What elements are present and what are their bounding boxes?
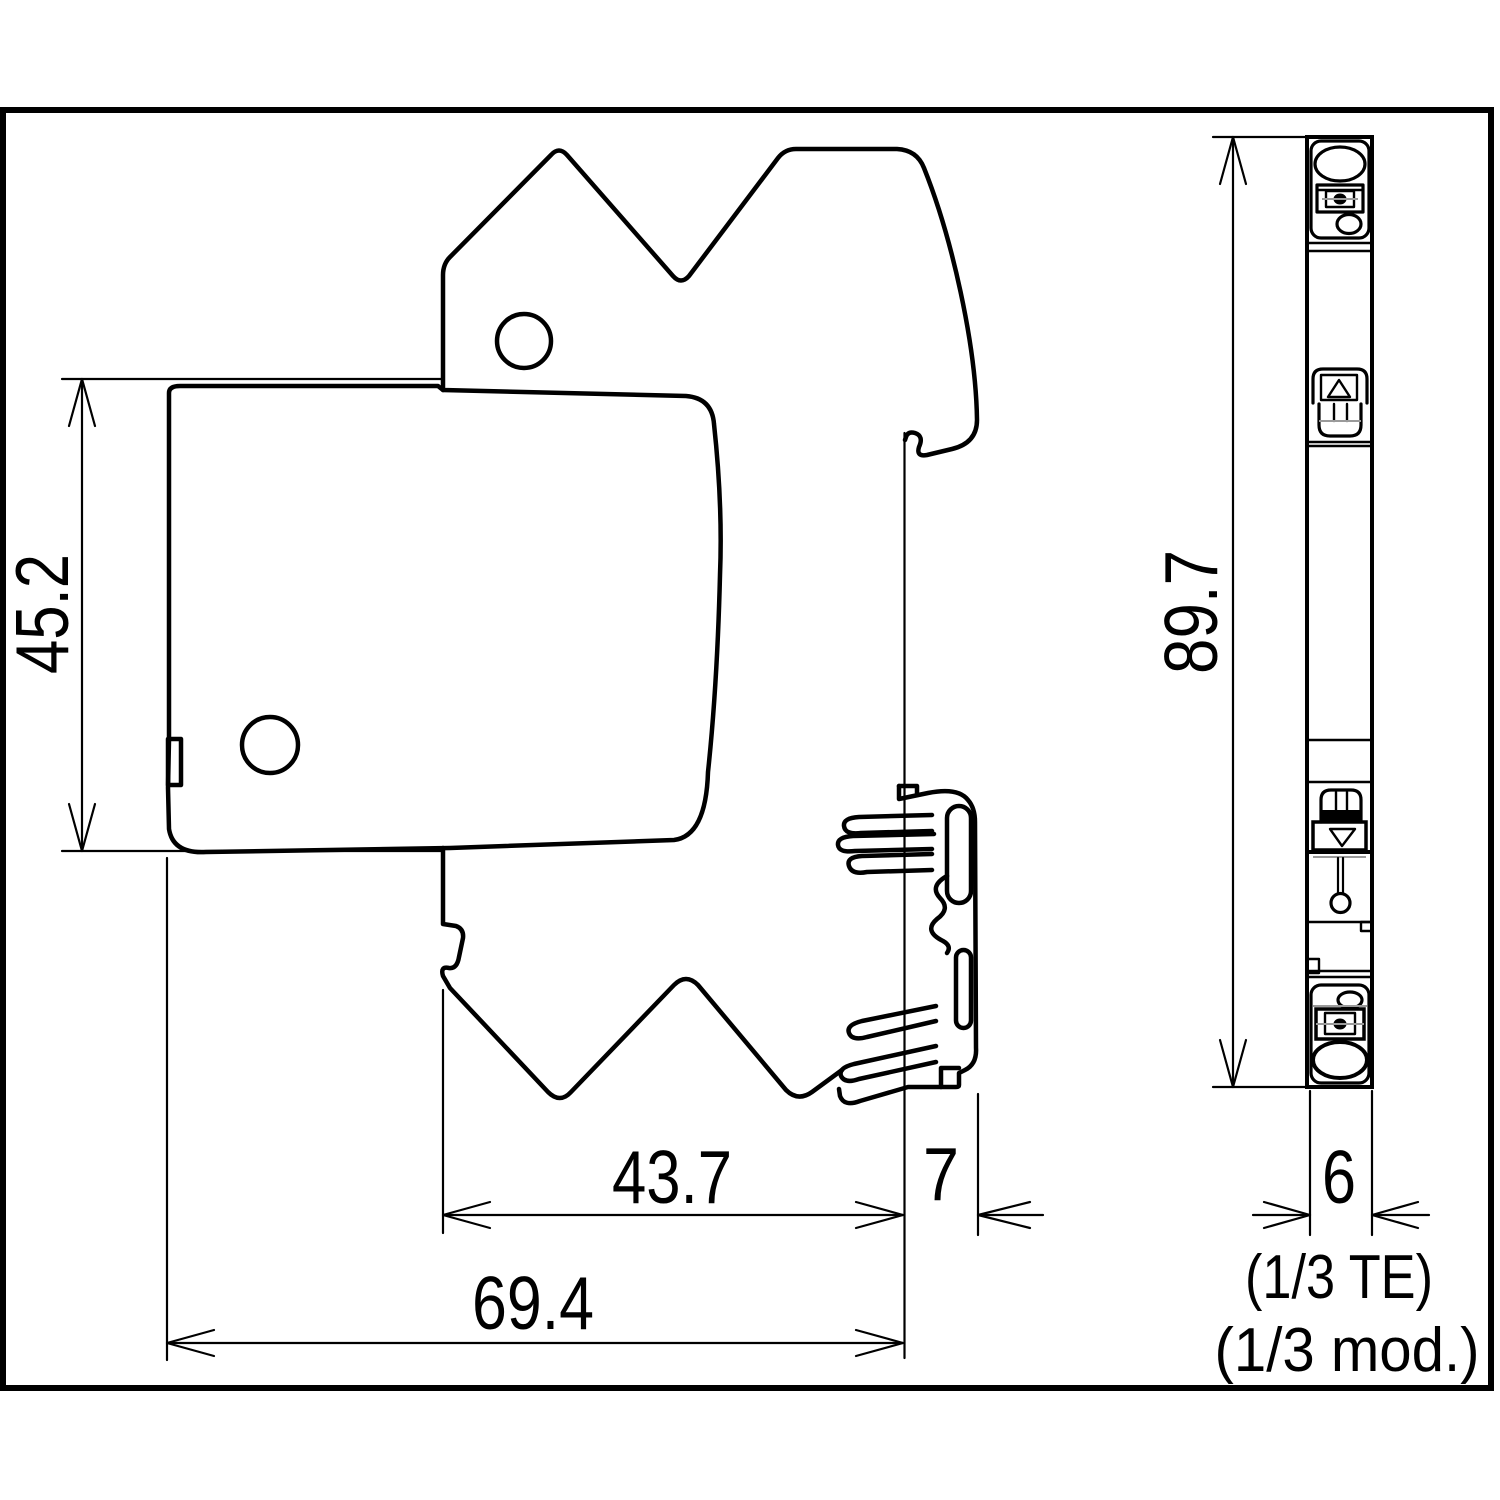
dimension-drawing: 45.2 89.7 43.7 7 xyxy=(0,0,1500,1500)
width-note-mod: (1/3 mod.) xyxy=(1215,1316,1480,1385)
dim-label-module-width: 6 xyxy=(1322,1135,1356,1219)
width-note-te: (1/3 TE) xyxy=(1245,1243,1433,1312)
dim-label-total-height: 89.7 xyxy=(1149,550,1233,674)
dim-label-body-depth: 43.7 xyxy=(612,1135,732,1219)
dim-label-rail-offset: 7 xyxy=(923,1132,959,1216)
dim-label-body-height: 45.2 xyxy=(0,554,84,674)
drawing-page: 45.2 89.7 43.7 7 xyxy=(0,0,1500,1500)
dim-label-total-depth: 69.4 xyxy=(472,1261,594,1345)
lower-clamp-band xyxy=(1321,810,1361,822)
